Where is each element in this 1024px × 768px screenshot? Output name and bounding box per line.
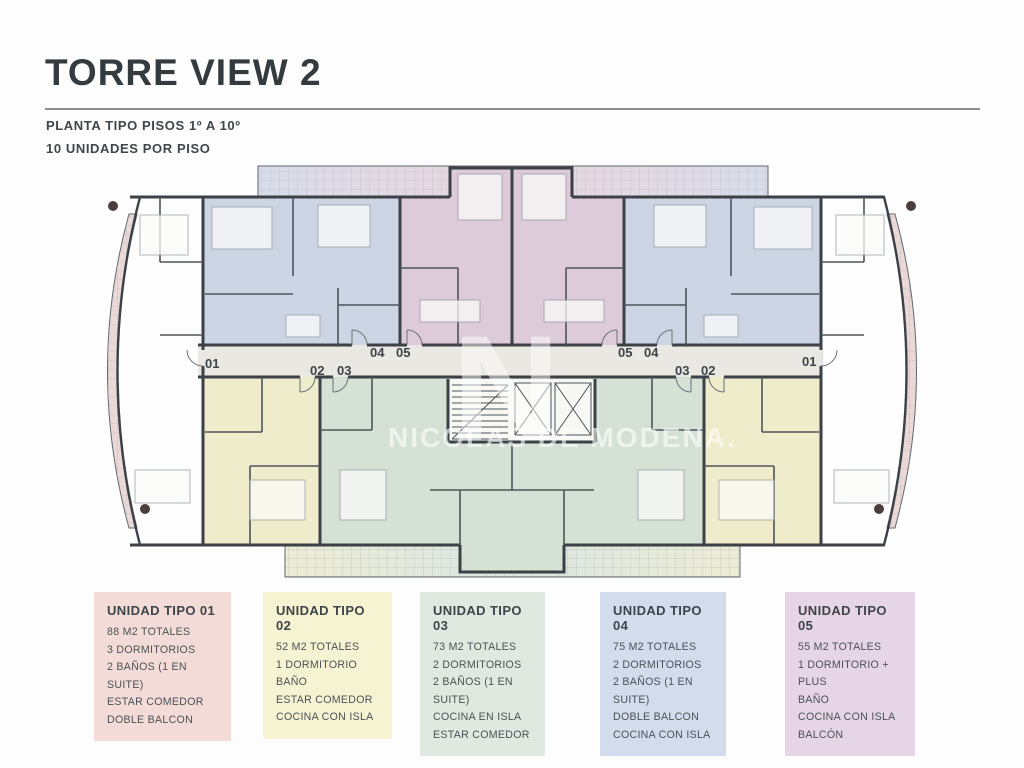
legend-title: UNIDAD TIPO 04 [613, 603, 713, 633]
left-curved-balcony [108, 214, 138, 528]
legend-unit-03: UNIDAD TIPO 03 73 M2 TOTALES 2 DORMITORI… [420, 592, 545, 756]
legend-item: 2 DORMITORIOS [613, 657, 713, 675]
legend-item: 2 BAÑOS (1 EN SUITE) [613, 674, 713, 709]
legend-item: BAÑO [798, 692, 902, 710]
legend-item: COCINA CON ISLA [613, 727, 713, 745]
unit-number-left-02: 02 [310, 363, 324, 378]
legend-item: DOBLE BALCON [613, 709, 713, 727]
legend-title: UNIDAD TIPO 05 [798, 603, 902, 633]
legend-title: UNIDAD TIPO 01 [107, 603, 218, 618]
legend-item: 88 M2 TOTALES [107, 624, 218, 642]
unit-number-left-04: 04 [370, 345, 385, 360]
legend-item: 73 M2 TOTALES [433, 639, 532, 657]
legend-item: ESTAR COMEDOR [107, 694, 218, 712]
legend-unit-01: UNIDAD TIPO 01 88 M2 TOTALES 3 DORMITORI… [94, 592, 231, 741]
legend-unit-02: UNIDAD TIPO 02 52 M2 TOTALES 1 DORMITORI… [263, 592, 392, 739]
right-curved-balcony [887, 214, 917, 528]
legend-item: 2 BAÑOS (1 EN SUITE) [107, 659, 218, 694]
legend-item: 2 BAÑOS (1 EN SUITE) [433, 674, 532, 709]
legend-item: BAÑO [276, 674, 379, 692]
legend-item: COCINA CON ISLA [276, 709, 379, 727]
unit-number-right-02: 02 [701, 363, 715, 378]
legend-title: UNIDAD TIPO 03 [433, 603, 532, 633]
legend-item: ESTAR COMEDOR [276, 692, 379, 710]
legend-item: 52 M2 TOTALES [276, 639, 379, 657]
unit-number-right-05: 05 [618, 345, 632, 360]
unit-number-left-01: 01 [205, 356, 219, 371]
unit-03-balcony-rooms [460, 545, 564, 572]
legend-item: COCINA EN ISLA [433, 709, 532, 727]
legend-unit-05: UNIDAD TIPO 05 55 M2 TOTALES 1 DORMITORI… [785, 592, 915, 756]
legend-item: 1 DORMITORIO + PLUS [798, 657, 902, 692]
legend-item: ESTAR COMEDOR [433, 727, 532, 745]
unit-number-right-03: 03 [675, 363, 689, 378]
legend-title: UNIDAD TIPO 02 [276, 603, 379, 633]
page: TORRE VIEW 2 PLANTA TIPO PISOS 1º A 10º … [0, 0, 1024, 768]
unit-number-left-05: 05 [396, 345, 410, 360]
watermark-name: NICOLAS DE MODENA. [388, 422, 737, 453]
legend-item: 1 DORMITORIO [276, 657, 379, 675]
legend-item: 55 M2 TOTALES [798, 639, 902, 657]
unit-number-left-03: 03 [337, 363, 351, 378]
legend-item: 2 DORMITORIOS [433, 657, 532, 675]
legend-item: DOBLE BALCON [107, 712, 218, 730]
unit-number-right-01: 01 [802, 354, 816, 369]
unit-number-right-04: 04 [644, 345, 659, 360]
legend-item: COCINA CON ISLA [798, 709, 902, 727]
legend-item: 3 DORMITORIOS [107, 642, 218, 660]
legend-item: BALCÓN [798, 727, 902, 745]
legend-unit-04: UNIDAD TIPO 04 75 M2 TOTALES 2 DORMITORI… [600, 592, 726, 756]
legend-item: 75 M2 TOTALES [613, 639, 713, 657]
